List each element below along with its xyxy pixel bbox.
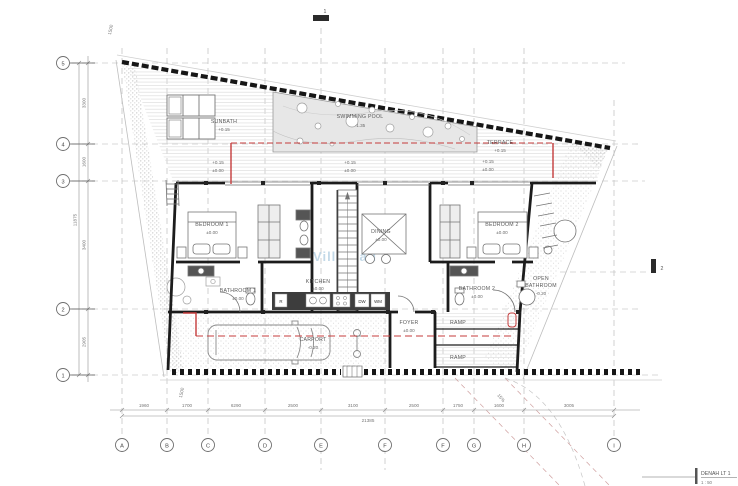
foyer-label: FOYER <box>399 320 418 326</box>
grid-col-H: H <box>522 443 526 449</box>
grid-col-E: E <box>319 443 323 449</box>
grid-row-4: 4 <box>61 142 64 148</box>
dim-l3: 2905 <box>82 336 87 347</box>
floor-plan-sheet: Villa Bali <box>0 0 738 486</box>
dining-elev: ±0.00 <box>375 237 387 242</box>
drawing-title: DENAH LT 1 <box>701 471 731 477</box>
sunbath-elev: +0.15 <box>218 127 230 132</box>
fridge-label: R <box>279 299 282 304</box>
kitchen-label: KITCHEN <box>306 279 331 285</box>
grid-row-3: 3 <box>61 179 64 185</box>
ramp1-label: RAMP <box>450 320 466 326</box>
dim-b-total: 21385 <box>362 418 375 423</box>
dim-l0: 3300 <box>82 97 87 108</box>
dim-b5: 2500 <box>409 403 420 408</box>
dim-l-total: 11875 <box>73 213 78 226</box>
carport-elev: -0.20 <box>308 345 319 350</box>
dim-top-left: 1500 <box>107 24 114 35</box>
grid-col-D: D <box>263 443 267 449</box>
ramp-slope-note: 15% <box>496 393 506 403</box>
floor-plan-drawing: Villa Bali <box>0 0 738 486</box>
dim-ticks-bottom <box>120 408 616 418</box>
grid-col-F1: F <box>383 443 387 449</box>
grid-bubbles-columns: A B C D E F F G H I <box>116 439 621 452</box>
pool-label: SWIMMING POOL <box>337 114 384 120</box>
deck-mark-2-bot: ±0.00 <box>344 168 356 173</box>
grid-col-B: B <box>165 443 169 449</box>
dim-b3: 2500 <box>288 403 299 408</box>
deck-mark-3-top: +0.15 <box>482 159 494 164</box>
deck-mark-1-bot: ±0.00 <box>212 168 224 173</box>
open-bathroom-label-1: OPEN <box>533 276 549 282</box>
drawing-scale: 1 : 50 <box>701 480 713 485</box>
open-bathroom-elev: -0.20 <box>536 291 547 296</box>
dim-l2: 3400 <box>82 239 87 250</box>
grid-col-F2: F <box>441 443 445 449</box>
dimension-bottom-text: 1960 1700 6290 2500 3100 2500 1750 1600 … <box>139 403 575 423</box>
bedroom1-label: BEDROOM 1 <box>195 222 228 228</box>
dishwasher-label: DW <box>358 299 366 304</box>
carport-label: CARPORT <box>299 337 327 343</box>
title-block: DENAH LT 1 1 : 50 <box>642 468 737 485</box>
grid-col-G: G <box>472 443 476 449</box>
bathroom2-elev: ±0.00 <box>471 294 483 299</box>
deck-mark-1-top: +0.15 <box>212 160 224 165</box>
grid-row-1: 1 <box>61 373 64 379</box>
sunbath-label: SUNBATH <box>211 119 237 125</box>
bathroom1-label: BATHROOM 1 <box>220 288 256 294</box>
pool-elev: -1.35 <box>355 123 366 128</box>
ramp2-label: RAMP <box>450 355 466 361</box>
grid-col-C: C <box>206 443 210 449</box>
dim-b7: 1600 <box>494 403 505 408</box>
terrace-elev: +0.15 <box>494 148 506 153</box>
dim-b1: 1700 <box>182 403 193 408</box>
dim-l1: 1600 <box>82 156 87 167</box>
bedroom2-label: BEDROOM 2 <box>485 222 518 228</box>
grid-row-2: 2 <box>61 307 64 313</box>
bedroom2-elev: ±0.00 <box>496 230 508 235</box>
section-1-marker <box>313 15 329 21</box>
bathroom1-elev: ±0.00 <box>232 296 244 301</box>
dim-b2: 6290 <box>231 403 242 408</box>
kitchen-elev: ±0.00 <box>312 286 324 291</box>
bathroom2-label: BATHROOM 2 <box>459 286 495 292</box>
ramp-upper-floor <box>436 313 520 329</box>
deck-mark-2-top: +0.15 <box>344 160 356 165</box>
dim-b6: 1750 <box>453 403 464 408</box>
kitchen-counter: R DW WM <box>272 292 390 310</box>
dimension-bottom <box>110 408 640 418</box>
dim-b4: 3100 <box>348 403 359 408</box>
foyer-elev: ±0.00 <box>403 328 415 333</box>
terrace-label: TERRACE <box>487 140 514 146</box>
section-2-marker <box>651 259 656 273</box>
ramp-lower-floor <box>436 345 518 367</box>
dim-b0: 1960 <box>139 403 150 408</box>
grid-col-A: A <box>120 443 124 449</box>
dim-b8: 3005 <box>564 403 575 408</box>
grid-row-5: 5 <box>61 61 64 67</box>
section-1-label: 1 <box>324 9 327 15</box>
washer-label: WM <box>374 299 382 304</box>
deck-mark-3-bot: ±0.00 <box>482 167 494 172</box>
driveway-lines <box>455 378 610 486</box>
dim-bottom-left: 1500 <box>178 387 185 398</box>
dining-label: DINING <box>371 229 391 235</box>
open-bathroom-label-2: BATHROOM <box>525 283 557 289</box>
section-2-label: 2 <box>661 266 664 272</box>
bedroom1-elev: ±0.00 <box>206 230 218 235</box>
